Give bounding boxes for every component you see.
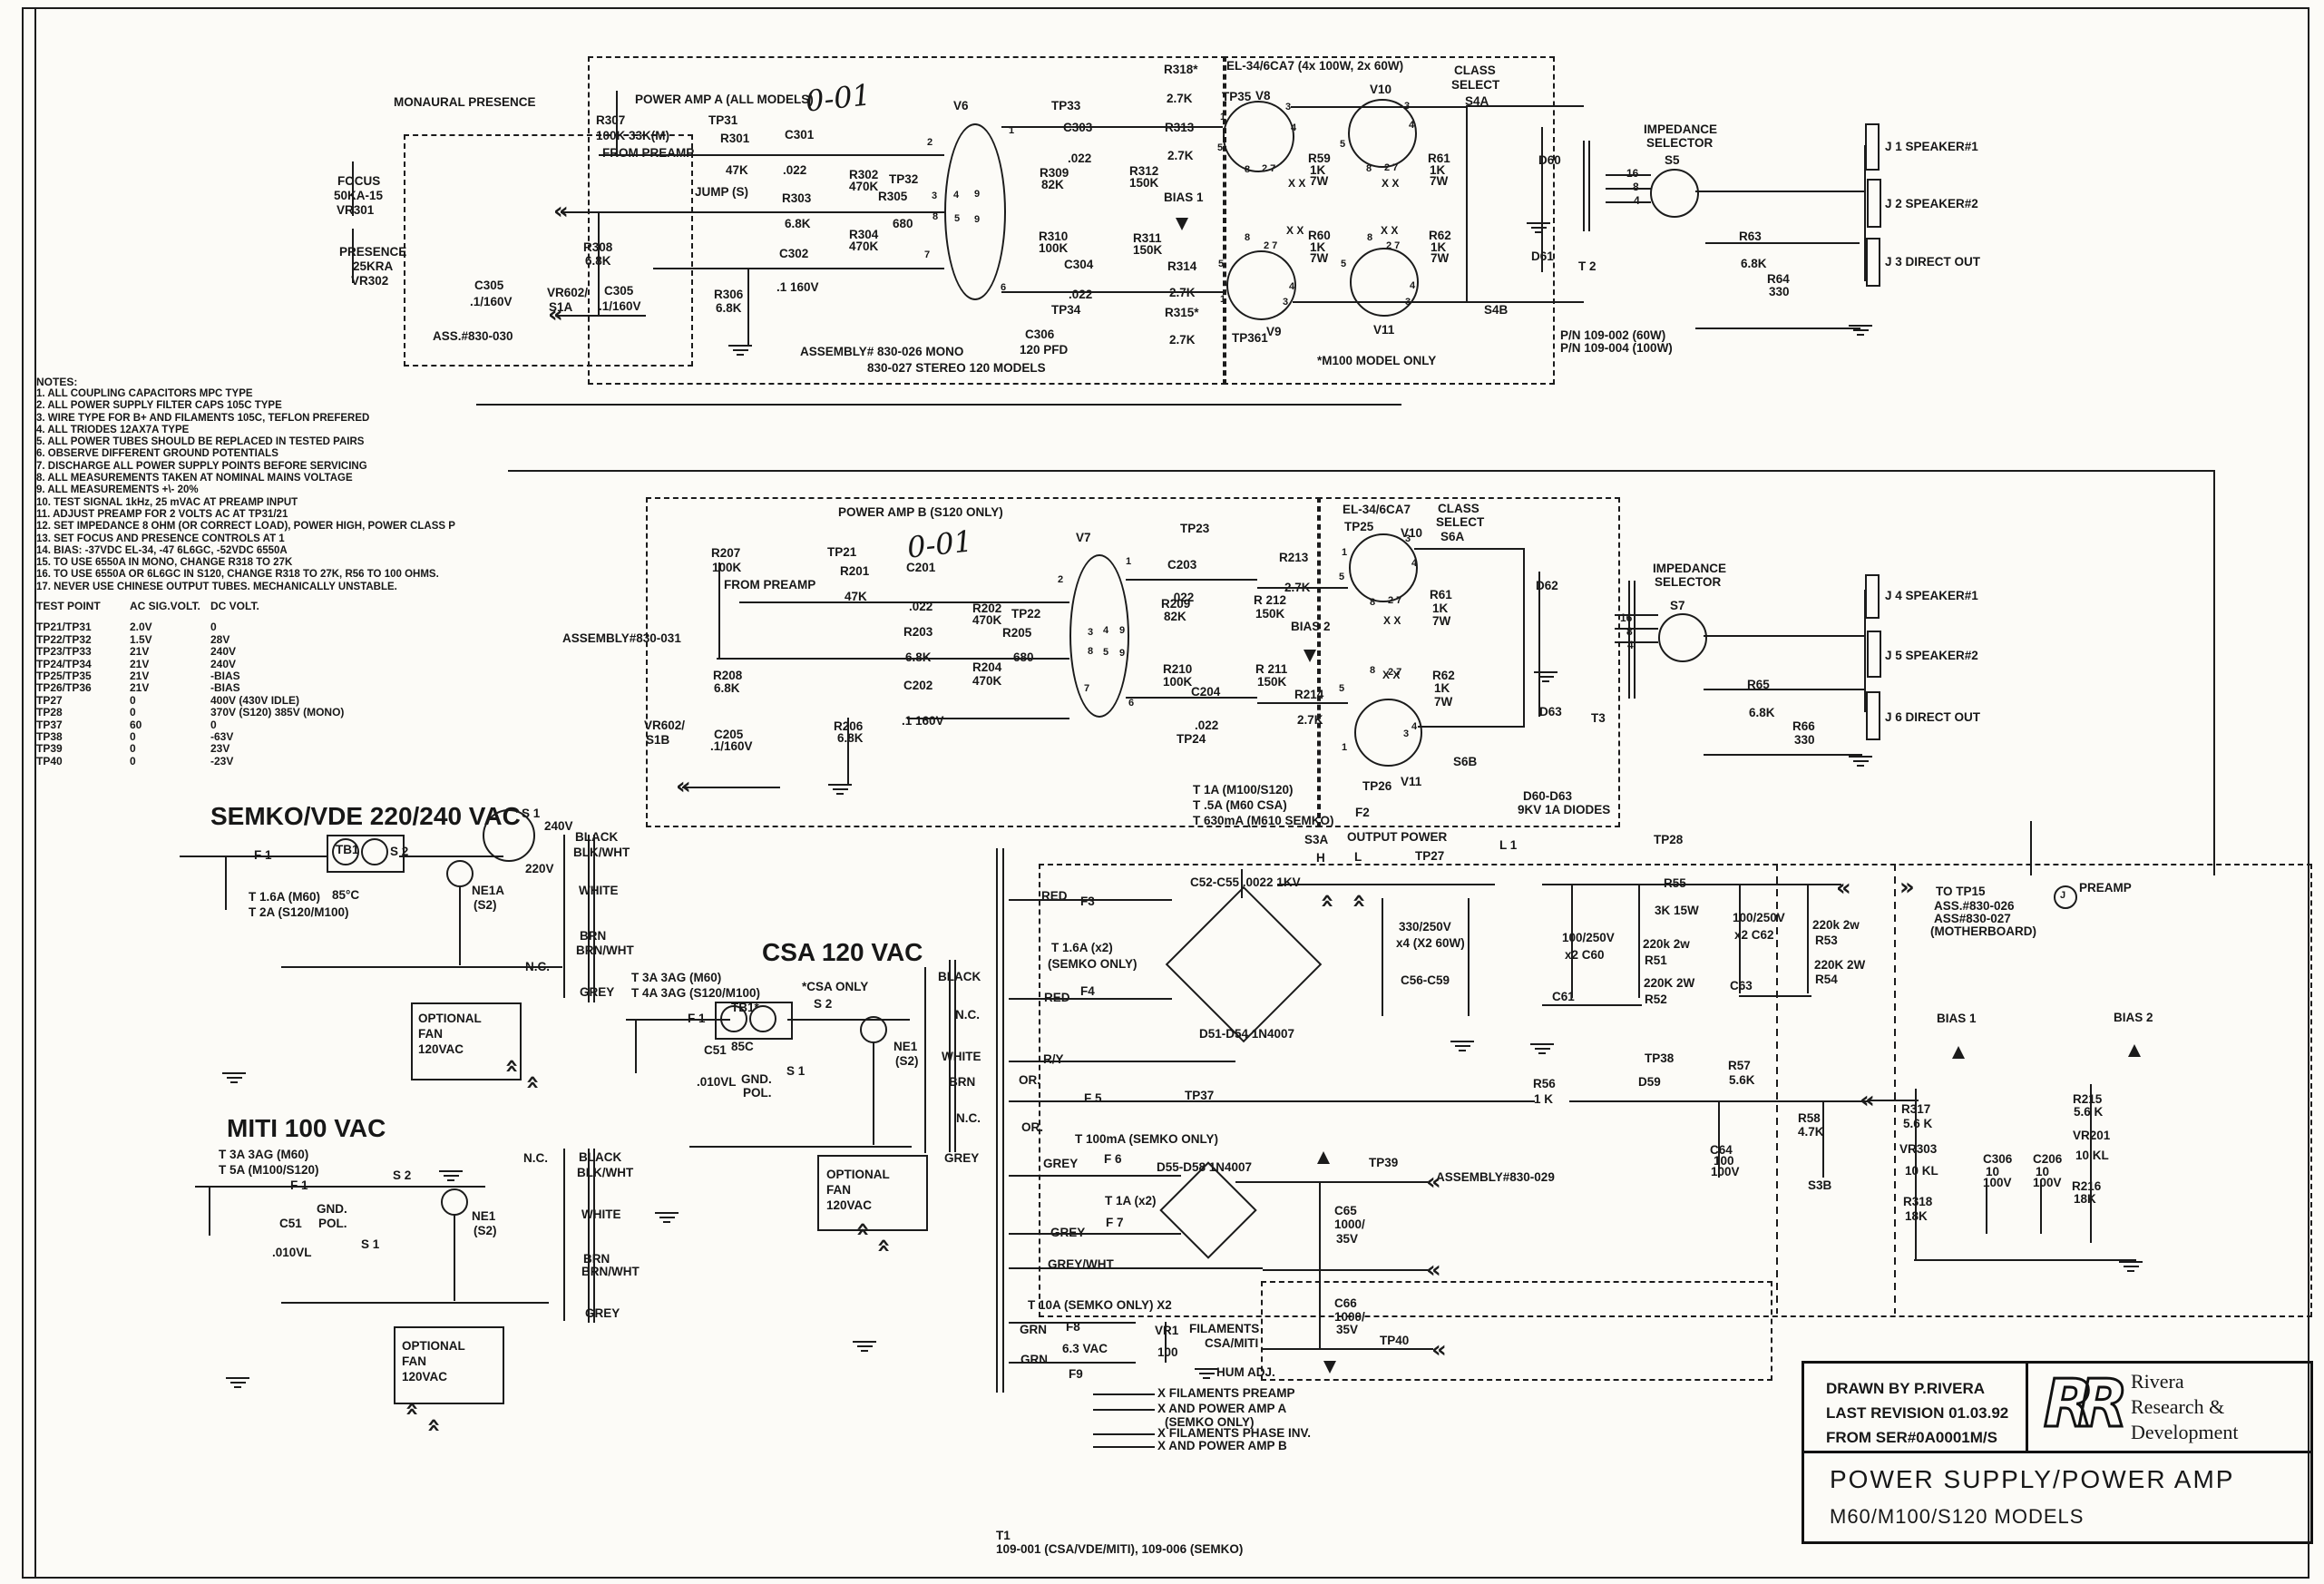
schematic-label: X AND POWER AMP B xyxy=(1157,1440,1287,1452)
test-point-cell: -63V xyxy=(210,731,233,743)
wire xyxy=(787,1019,910,1021)
company-line: Research & xyxy=(2131,1394,2239,1420)
schematic-label: BRN xyxy=(949,1076,975,1089)
schematic-label: S3A xyxy=(1304,834,1328,846)
schematic-label: 6.8K xyxy=(1749,707,1775,719)
test-point-cell: 0 xyxy=(130,743,210,755)
ground-icon xyxy=(663,1221,670,1223)
note-item: 9. ALL MEASUREMENTS +\- 20% xyxy=(36,484,455,496)
schematic-label: T 2A (S120/M100) xyxy=(249,906,349,919)
component-box xyxy=(394,1326,504,1404)
schematic-label: H xyxy=(1316,852,1325,865)
wire xyxy=(331,1186,485,1188)
wire xyxy=(593,1149,595,1323)
company-line: Development xyxy=(2131,1420,2239,1445)
test-point-cell: 0 xyxy=(130,707,210,719)
wire xyxy=(399,856,503,857)
ground-icon xyxy=(226,1377,249,1379)
schematic-label: NE1 xyxy=(472,1210,495,1223)
schematic-label: 85C xyxy=(731,1041,754,1053)
chevron-connector-icon: « xyxy=(1836,876,1851,900)
schematic-label: FOCUS xyxy=(337,175,380,188)
tube-v6 xyxy=(944,123,1006,300)
chevron-connector-icon: « xyxy=(1860,1089,1875,1112)
test-point-cell: -BIAS xyxy=(210,670,240,682)
chevron-connector-icon: « xyxy=(1431,1338,1447,1362)
test-point-cell: -BIAS xyxy=(210,682,240,694)
neon-lamp-ne1a xyxy=(446,860,474,887)
test-point-cell: 0 xyxy=(210,621,217,633)
chevron-connector-icon: « xyxy=(1347,894,1371,909)
test-point-cell: 21V xyxy=(130,646,210,658)
wire xyxy=(22,7,24,1577)
semko-section-title: SEMKO/VDE 220/240 VAC xyxy=(210,804,521,829)
jack-j5-label: J 5 SPEAKER#2 xyxy=(1885,650,1978,662)
title-block-logo-cell: RR Rivera Research & Development xyxy=(2033,1364,2310,1451)
schematic-label: TP27 xyxy=(1415,850,1444,863)
schematic-label: BLACK xyxy=(579,1151,621,1164)
wire xyxy=(635,1019,637,1073)
schematic-label: 330 xyxy=(1794,734,1815,747)
schematic-label: C51 xyxy=(704,1044,727,1057)
note-item: 10. TEST SIGNAL 1kHz, 25 mVAC AT PREAMP … xyxy=(36,497,455,509)
title-block-title-cell: POWER SUPPLY/POWER AMP M60/M100/S120 MOD… xyxy=(1804,1451,2310,1529)
schematic-label: TP28 xyxy=(1654,834,1683,846)
company-line: Rivera xyxy=(2131,1369,2239,1394)
schematic-label: R64 xyxy=(1767,273,1790,286)
test-point-row: TP380-63V xyxy=(36,731,344,743)
assembly-boundary xyxy=(646,497,1321,827)
ground-icon xyxy=(833,788,848,790)
chevron-connector-icon: « xyxy=(422,1418,445,1433)
note-item: 14. BIAS: -37VDC EL-34, -47 6L6GC, -52VD… xyxy=(36,545,455,557)
ground-icon xyxy=(447,1179,454,1181)
schematic-label: 4 xyxy=(1634,195,1640,206)
schematic-label: GRN xyxy=(1020,1324,1047,1336)
test-point-header-cell: TEST POINT xyxy=(36,601,130,612)
ground-icon xyxy=(2119,1261,2143,1263)
tb1-circle xyxy=(332,838,359,865)
schematic-label: 240V xyxy=(544,820,573,833)
schematic-label: BLACK xyxy=(575,831,618,844)
test-point-cell: 2.0V xyxy=(130,621,210,633)
test-point-cell: TP24/TP34 xyxy=(36,659,130,670)
tube-v11 xyxy=(1350,248,1419,317)
jack-j2-label: J 2 SPEAKER#2 xyxy=(1885,198,1978,210)
chevron-connector-icon: « xyxy=(1426,1170,1441,1194)
schematic-label: .010VL xyxy=(697,1076,737,1089)
wire xyxy=(195,1186,331,1188)
schematic-label: R66 xyxy=(1792,720,1815,733)
wire xyxy=(1705,242,1860,244)
test-point-row: TP270400V (430V IDLE) xyxy=(36,695,344,707)
schematic-label: WHITE xyxy=(579,885,619,897)
wire xyxy=(563,835,565,998)
tb1-circle xyxy=(720,1005,747,1032)
ground-icon xyxy=(1542,680,1549,682)
miti-section-title: MITI 100 VAC xyxy=(227,1116,386,1141)
ground-icon xyxy=(1455,1045,1470,1047)
schematic-label: 330 xyxy=(1769,286,1790,298)
schematic-label: S7 xyxy=(1670,600,1685,612)
note-item: 1. ALL COUPLING CAPACITORS MPC TYPE xyxy=(36,388,455,400)
schematic-label: GREY xyxy=(944,1152,979,1165)
ground-icon xyxy=(836,793,844,795)
drawn-by: DRAWN BY P.RIVERA xyxy=(1826,1376,2026,1401)
wire xyxy=(1002,848,1004,1393)
wire xyxy=(1695,191,1864,192)
schematic-label: VR301 xyxy=(337,204,374,217)
schematic-label: OR. xyxy=(1019,1074,1040,1087)
wire xyxy=(1606,201,1651,203)
test-point-cell: 60 xyxy=(130,719,210,731)
ground-icon xyxy=(444,1175,459,1177)
title-block-info: DRAWN BY P.RIVERA LAST REVISION 01.03.92… xyxy=(1804,1364,2028,1451)
ground-icon xyxy=(1450,1041,1474,1042)
test-point-cell: -23V xyxy=(210,756,233,768)
schematic-label: 109-001 (CSA/VDE/MITI), 109-006 (SEMKO) xyxy=(996,1543,1243,1556)
schematic-label: GRN xyxy=(1020,1354,1048,1366)
schematic-label: L xyxy=(1354,851,1362,864)
from-serial: FROM SER#0A0001M/S xyxy=(1826,1425,2026,1450)
ground-icon xyxy=(439,1170,463,1172)
schematic-label: 8 xyxy=(1633,181,1639,192)
chevron-connector-icon: « xyxy=(400,1402,424,1417)
schematic-label: VR302 xyxy=(351,275,388,288)
last-revision: LAST REVISION 01.03.92 xyxy=(1826,1401,2026,1425)
schematic-label: N.C. xyxy=(955,1009,980,1022)
schematic-label: BLACK xyxy=(938,971,981,983)
note-item: 16. TO USE 6550A OR 6L6GC IN S120, CHANG… xyxy=(36,569,455,581)
wire xyxy=(352,229,354,283)
schematic-label: PRESENCE xyxy=(339,246,406,259)
ground-icon xyxy=(1199,1373,1215,1374)
ground-icon xyxy=(655,1212,679,1214)
arrow-icon xyxy=(1304,650,1316,669)
schematic-label: NE1 xyxy=(893,1041,917,1053)
wire xyxy=(454,1214,455,1301)
schematic-label: P/N 109-004 (100W) xyxy=(1560,342,1673,355)
wire xyxy=(1704,754,1862,756)
note-item: 8. ALL MEASUREMENTS TAKEN AT NOMINAL MAI… xyxy=(36,473,455,484)
ground-icon xyxy=(733,349,748,351)
component-box xyxy=(817,1155,928,1231)
jack-j3-label: J 3 DIRECT OUT xyxy=(1885,256,1980,269)
wire xyxy=(593,835,595,1002)
test-point-cell: 240V xyxy=(210,646,236,658)
note-item: 11. ADJUST PREAMP FOR 2 VOLTS AC AT TP31… xyxy=(36,509,455,521)
schematic-label: T 3A 3AG (M60) xyxy=(631,972,721,984)
wire xyxy=(996,848,998,1393)
schematic-label: GND. xyxy=(317,1203,347,1216)
test-point-row: TP24/TP3421V240V xyxy=(36,659,344,670)
schematic-label: T 4A 3AG (S120/M100) xyxy=(631,987,760,1000)
ground-icon xyxy=(1195,1368,1218,1370)
ground-icon xyxy=(2124,1266,2139,1267)
test-point-cell: TP23/TP33 xyxy=(36,646,130,658)
schematic-label: (S2) xyxy=(895,1055,919,1068)
wire xyxy=(924,967,926,1153)
note-item: 6. OBSERVE DIFFERENT GROUND POTENTIALS xyxy=(36,448,455,460)
output-power-label: OUTPUT POWER xyxy=(1347,831,1447,844)
chevron-connector-icon: « xyxy=(1315,894,1339,909)
schematic-label: FILAMENTS xyxy=(1189,1323,1259,1335)
test-point-cell: 28V xyxy=(210,634,229,646)
schematic-label: T 3A 3AG (M60) xyxy=(219,1149,308,1161)
wire xyxy=(873,1041,874,1145)
test-point-row: TP400-23V xyxy=(36,756,344,768)
ground-icon xyxy=(227,1077,242,1079)
title-block: DRAWN BY P.RIVERA LAST REVISION 01.03.92… xyxy=(1802,1361,2313,1544)
ground-icon xyxy=(828,784,852,786)
component-box xyxy=(1865,123,1880,171)
ground-icon xyxy=(1538,1052,1546,1054)
ground-icon xyxy=(1849,325,1872,327)
wire xyxy=(281,966,562,968)
test-point-header-row: TEST POINTAC SIG.VOLT.DC VOLT. xyxy=(36,601,344,612)
test-point-cell: TP27 xyxy=(36,695,130,707)
chevron-connector-icon: « xyxy=(676,775,691,798)
wire xyxy=(1704,635,1864,637)
note-item: 2. ALL POWER SUPPLY FILTER CAPS 105C TYP… xyxy=(36,400,455,412)
note-item: 15. TO USE 6550A IN MONO, CHANGE R318 TO… xyxy=(36,557,455,569)
schematic-label: .010VL xyxy=(272,1247,312,1259)
tube-v10-b xyxy=(1349,533,1418,602)
arrow-icon xyxy=(1952,1040,1965,1059)
test-point-row: TP26/TP3621V-BIAS xyxy=(36,682,344,694)
schematic-label: S 1 xyxy=(786,1065,805,1078)
test-point-cell: 370V (S120) 385V (MONO) xyxy=(210,707,344,719)
wire xyxy=(1615,614,1658,616)
schematic-label: IMPEDANCE xyxy=(1653,562,1726,575)
wire xyxy=(1093,1446,1155,1448)
wire xyxy=(476,404,1401,406)
wire xyxy=(954,960,956,1152)
schematic-label: GREY xyxy=(585,1307,620,1320)
tube-v9 xyxy=(1226,250,1296,320)
test-point-cell: 400V (430V IDLE) xyxy=(210,695,299,707)
wire xyxy=(1704,689,1864,690)
arrow-icon xyxy=(1176,218,1188,237)
schematic-label: P/N 109-002 (60W) xyxy=(1560,329,1665,342)
wire xyxy=(459,885,461,965)
wire xyxy=(1615,641,1658,643)
schematic-label: *CSA ONLY xyxy=(802,981,868,993)
impedance-selector-s7 xyxy=(1658,613,1707,662)
wire xyxy=(949,960,951,1152)
note-item: 4. ALL TRIODES 12AX7A TYPE xyxy=(36,425,455,436)
ground-icon xyxy=(1534,671,1557,673)
ground-icon xyxy=(861,1350,868,1352)
schematic-label: GREY xyxy=(580,986,614,999)
wire xyxy=(1009,1322,1136,1324)
wire xyxy=(1165,1322,1167,1363)
schematic-label: SELECTOR xyxy=(1655,576,1721,589)
schematic-label: CSA/MITI xyxy=(1205,1337,1258,1350)
wire xyxy=(588,1149,590,1323)
test-point-table: TEST POINTAC SIG.VOLT.DC VOLT.TP21/TP312… xyxy=(36,601,344,768)
note-item: 12. SET IMPEDANCE 8 OHM (OR CORRECT LOAD… xyxy=(36,521,455,533)
test-point-cell: 21V xyxy=(130,659,210,670)
ground-icon xyxy=(737,354,744,356)
test-point-cell: 1.5V xyxy=(130,634,210,646)
csa-section-title: CSA 120 VAC xyxy=(762,940,923,965)
schematic-label: T 2 xyxy=(1578,260,1597,273)
test-point-cell: TP40 xyxy=(36,756,130,768)
wire xyxy=(588,835,590,1002)
ground-icon xyxy=(1853,760,1869,762)
schematic-label: 6.8K xyxy=(1741,258,1767,270)
ground-icon xyxy=(1203,1377,1210,1379)
ground-icon xyxy=(1538,676,1554,678)
test-point-row: TP23/TP3321V240V xyxy=(36,646,344,658)
test-point-cell: 21V xyxy=(130,682,210,694)
schematic-label: POL. xyxy=(743,1087,772,1100)
wire xyxy=(2213,470,2215,875)
wire xyxy=(1615,628,1658,630)
wire xyxy=(2308,7,2309,1577)
ground-icon xyxy=(230,1382,246,1384)
schematic-label: BLK/WHT xyxy=(573,846,630,859)
schematic-label: GND. xyxy=(741,1073,772,1086)
test-point-cell: 0 xyxy=(130,731,210,743)
ground-icon xyxy=(1849,756,1872,758)
schematic-label: 16 xyxy=(1626,168,1638,179)
chevron-connector-icon: « xyxy=(851,1222,874,1237)
neon-lamp-ne1-csa xyxy=(860,1016,887,1043)
chevron-connector-icon: « xyxy=(500,1059,523,1074)
ground-icon xyxy=(1527,222,1550,224)
chevron-connector-icon: « xyxy=(548,303,563,327)
wire xyxy=(1628,581,1630,699)
ground-icon xyxy=(234,1386,241,1388)
wire xyxy=(22,7,2309,9)
neon-lamp-ne1-miti xyxy=(441,1188,468,1216)
schematic-label: T1 xyxy=(996,1530,1011,1542)
company-name: Rivera Research & Development xyxy=(2131,1369,2239,1445)
ground-icon xyxy=(1530,1043,1554,1045)
wire xyxy=(1606,174,1651,176)
wire xyxy=(180,856,328,857)
notes-list: 1. ALL COUPLING CAPACITORS MPC TYPE2. AL… xyxy=(36,388,455,593)
test-point-cell: 0 xyxy=(210,719,217,731)
test-point-cell: TP25/TP35 xyxy=(36,670,130,682)
note-item: 5. ALL POWER TUBES SHOULD BE REPLACED IN… xyxy=(36,436,455,448)
wire xyxy=(281,1302,549,1304)
jack-j4-label: J 4 SPEAKER#1 xyxy=(1885,590,1978,602)
test-point-row: TP21/TP312.0V0 xyxy=(36,621,344,633)
test-point-row: TP25/TP3521V-BIAS xyxy=(36,670,344,682)
schematic-label: X FILAMENTS PHASE INV. xyxy=(1157,1427,1311,1440)
tb1-circle xyxy=(361,838,388,865)
doc-title: POWER SUPPLY/POWER AMP xyxy=(1830,1465,2310,1494)
schematic-label: BLK/WHT xyxy=(577,1167,633,1179)
note-item: 3. WIRE TYPE FOR B+ AND FILAMENTS 105C, … xyxy=(36,413,455,425)
schematic-label: BRN/WHT xyxy=(576,944,634,957)
schematic-label: S 2 xyxy=(393,1169,411,1182)
schematic-label: WHITE xyxy=(942,1051,981,1063)
schematic-label: (S2) xyxy=(474,899,497,912)
component-box xyxy=(1866,238,1880,287)
schematic-label: 220V xyxy=(525,863,554,875)
tube-v7 xyxy=(1069,554,1129,718)
ground-icon xyxy=(857,1345,873,1347)
test-point-header-cell: DC VOLT. xyxy=(210,601,259,612)
wire xyxy=(1588,141,1590,231)
assembly-boundary xyxy=(1261,1281,1772,1381)
wire xyxy=(1583,141,1585,231)
arrow-icon xyxy=(1317,1145,1330,1164)
note-item: 7. DISCHARGE ALL POWER SUPPLY POINTS BEF… xyxy=(36,461,455,473)
monaural-presence-title: MONAURAL PRESENCE xyxy=(394,96,536,109)
arrow-icon xyxy=(1323,1361,1336,1380)
arrow-icon xyxy=(2128,1038,2141,1057)
ground-icon xyxy=(1535,1048,1550,1050)
ground-icon xyxy=(1853,329,1869,331)
ground-icon xyxy=(230,1081,238,1083)
jack-j1-label: J 1 SPEAKER#1 xyxy=(1885,141,1978,153)
ground-icon xyxy=(728,345,752,347)
chevron-connector-icon: « xyxy=(553,200,569,223)
ground-icon xyxy=(2127,1270,2134,1272)
wire xyxy=(508,470,2213,472)
schematic-label: POL. xyxy=(318,1217,347,1230)
schematic-label: BRN/WHT xyxy=(581,1266,640,1278)
jack-j6-label: J 6 DIRECT OUT xyxy=(1885,711,1980,724)
note-item: 17. NEVER USE CHINESE OUTPUT TUBES. MECH… xyxy=(36,582,455,593)
schematic-label: N.C. xyxy=(523,1152,548,1165)
preamp-connector xyxy=(2054,885,2077,909)
schematic-canvas: NOTES: 1. ALL COUPLING CAPACITORS MPC TY… xyxy=(0,0,2324,1584)
schematic-label: T 1.6A (M60) xyxy=(249,891,320,904)
schematic-label: X FILAMENTS PREAMP xyxy=(1157,1387,1295,1400)
schematic-label: VR1 xyxy=(1155,1325,1178,1337)
wire xyxy=(1009,1362,1136,1364)
schematic-label: F9 xyxy=(1069,1368,1083,1381)
component-box xyxy=(1867,179,1881,228)
tube-v11-b xyxy=(1354,699,1422,767)
wire xyxy=(689,1146,912,1148)
schematic-label: S 2 xyxy=(814,998,832,1011)
schematic-label: T 5A (M100/S120) xyxy=(219,1164,319,1177)
wire xyxy=(22,1577,2309,1579)
schematic-label: S5 xyxy=(1665,154,1680,167)
notes-header: NOTES: xyxy=(36,376,455,388)
wire xyxy=(1695,328,1860,329)
ground-icon xyxy=(659,1217,675,1218)
wire xyxy=(209,1186,210,1236)
component-box xyxy=(1866,691,1880,740)
test-point-cell: TP26/TP36 xyxy=(36,682,130,694)
schematic-label: 100 xyxy=(1157,1346,1178,1359)
doc-subtitle: M60/M100/S120 MODELS xyxy=(1830,1505,2310,1529)
wire xyxy=(1093,1409,1155,1411)
schematic-label: (S2) xyxy=(474,1225,497,1237)
test-point-cell: TP38 xyxy=(36,731,130,743)
test-point-cell: TP37 xyxy=(36,719,130,731)
test-point-cell: TP28 xyxy=(36,707,130,719)
schematic-label: 50KA-15 xyxy=(334,190,383,202)
chevron-connector-icon: « xyxy=(521,1075,544,1090)
test-point-cell: 0 xyxy=(130,756,210,768)
tube-v8 xyxy=(1223,101,1294,172)
tb1-circle xyxy=(749,1005,776,1032)
assembly-boundary xyxy=(588,56,1226,385)
schematic-label: IMPEDANCE xyxy=(1644,123,1717,136)
wire xyxy=(563,1149,565,1321)
ground-icon xyxy=(1857,765,1864,767)
wire xyxy=(34,7,36,1577)
